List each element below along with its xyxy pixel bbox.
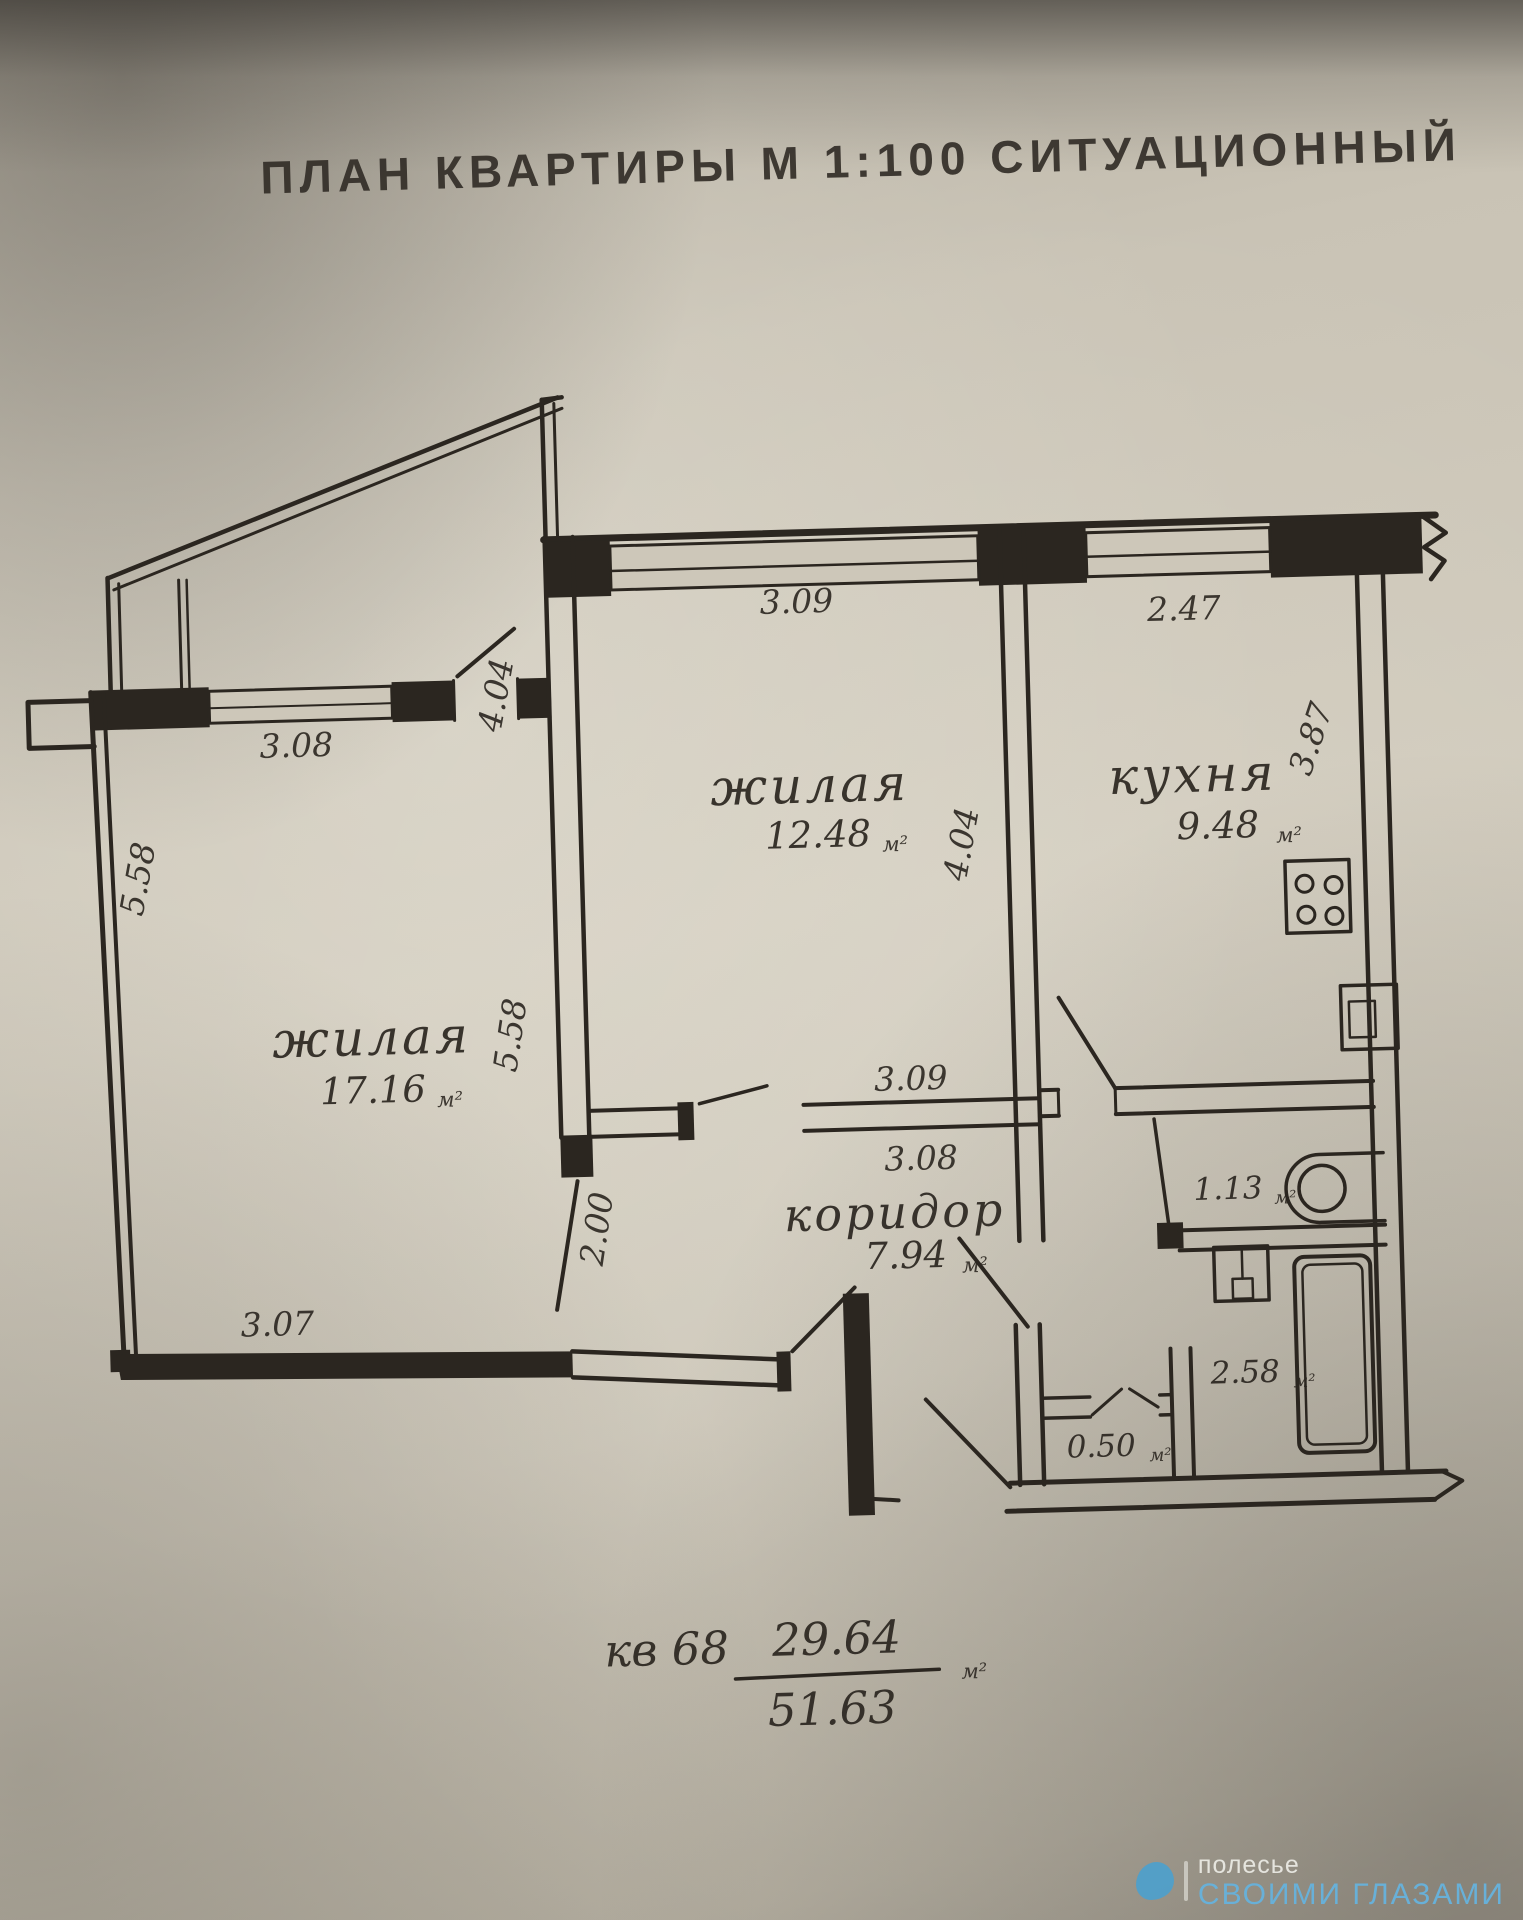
watermark-brand: полесье [1198,1852,1505,1878]
dim-left-room-inner-height: 5.58 [485,996,534,1074]
watermark-divider [1184,1861,1188,1901]
dim-corridor-top-a: 3.09 [874,1058,949,1099]
bath-door-leaf [959,1237,1027,1329]
washbasin-icon [1214,1246,1269,1301]
corridor-top-wall [588,1078,1040,1143]
area-living1: 17.16 [319,1067,426,1113]
kitchen-door-leaf [1059,996,1116,1089]
area-corridor: 7.94 [864,1233,948,1278]
dim-left-room-window: 3.08 [259,725,334,766]
top-wall [544,515,1447,604]
vestibule-wall [843,1293,875,1516]
apartment-summary: кв 68 29.64 51.63 м² [603,1608,988,1742]
toilet-icon [1285,1153,1385,1224]
summary-unit: м² [961,1659,988,1684]
area-closet: 0.50 [1066,1428,1136,1466]
watermark-tagline: своими глазами [1198,1879,1505,1911]
watermark-drop-icon [1136,1862,1174,1900]
dim-mid-room-left-height: 4.04 [470,655,522,735]
total-area: 51.63 [767,1680,897,1737]
dim-corridor-top-b: 3.08 [884,1138,959,1179]
dim-mid-room-right-height: 4.04 [935,804,987,884]
dim-top-window-mid: 3.09 [759,581,834,622]
window-kitchen [1086,528,1271,577]
living-area-total: 29.64 [770,1610,901,1667]
area-wc: 1.13 [1193,1170,1263,1208]
unit-kitchen: м² [1276,823,1303,848]
unit-corridor: м² [962,1253,989,1278]
wall-break-symbol-top [1421,515,1447,580]
room-label-living1: жилая [271,1006,471,1070]
area-kitchen: 9.48 [1176,803,1260,848]
scanned-floor-plan-photo: ПЛАН КВАРТИРЫ М 1:100 СИТУАЦИОННЫЙ [0,0,1523,1920]
unit-living2: м² [882,832,909,857]
unit-wc: м² [1274,1187,1297,1209]
area-bath: 2.58 [1209,1354,1280,1392]
dim-left-room-outer-height: 5.58 [112,839,164,918]
area-living2: 12.48 [764,812,871,858]
closet-door-leaf [1092,1388,1159,1415]
left-room-bottom-wall [116,1341,573,1390]
fraction-line [735,1669,939,1679]
wall-break-symbol-bottom [1434,1471,1463,1500]
watermark: полесье своими глазами [1136,1852,1505,1910]
entrance-door-leaf [926,1397,1010,1489]
room-label-kitchen: кухня [1108,744,1278,807]
plan-title: ПЛАН КВАРТИРЫ М 1:100 СИТУАЦИОННЫЙ [260,118,1463,204]
window-left-room [209,686,393,723]
dim-left-room-bottom: 3.07 [240,1304,315,1345]
apartment-number: кв 68 [604,1621,730,1677]
wc-door-leaf [1154,1119,1169,1227]
bathtub-icon [1294,1255,1375,1453]
room-label-living2: жилая [709,754,909,818]
dim-kitchen-height: 3.87 [1281,698,1341,780]
dim-corridor-left-height: 2.00 [572,1189,621,1268]
unit-bath: м² [1293,1371,1316,1393]
balcony-outline [103,397,570,692]
left-outer-wall [28,692,137,1374]
right-interior-wall [939,526,1050,1486]
wc-walls [1154,1113,1386,1251]
unit-closet: м² [1149,1445,1172,1467]
corridor-door-leaf [699,1086,767,1104]
stove-icon [1285,860,1351,934]
wall-pilaster [28,701,94,749]
dim-top-window-kitchen: 2.47 [1146,588,1222,629]
kitchen-bottom-wall [1037,989,1374,1116]
floor-plan-drawing: ПЛАН КВАРТИРЫ М 1:100 СИТУАЦИОННЫЙ [0,0,1523,1920]
unit-living1: м² [437,1087,464,1112]
